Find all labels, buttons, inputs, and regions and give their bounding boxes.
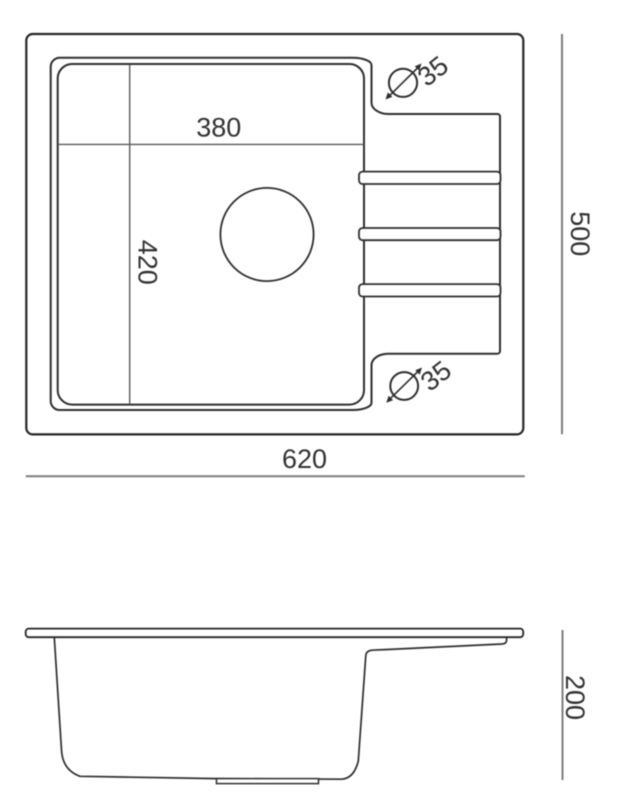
svg-text:500: 500: [565, 211, 595, 256]
svg-text:380: 380: [196, 112, 241, 142]
svg-text:420: 420: [132, 240, 162, 285]
svg-text:200: 200: [560, 675, 590, 720]
svg-text:35: 35: [415, 355, 457, 397]
svg-text:35: 35: [412, 50, 454, 92]
svg-text:620: 620: [282, 444, 327, 474]
